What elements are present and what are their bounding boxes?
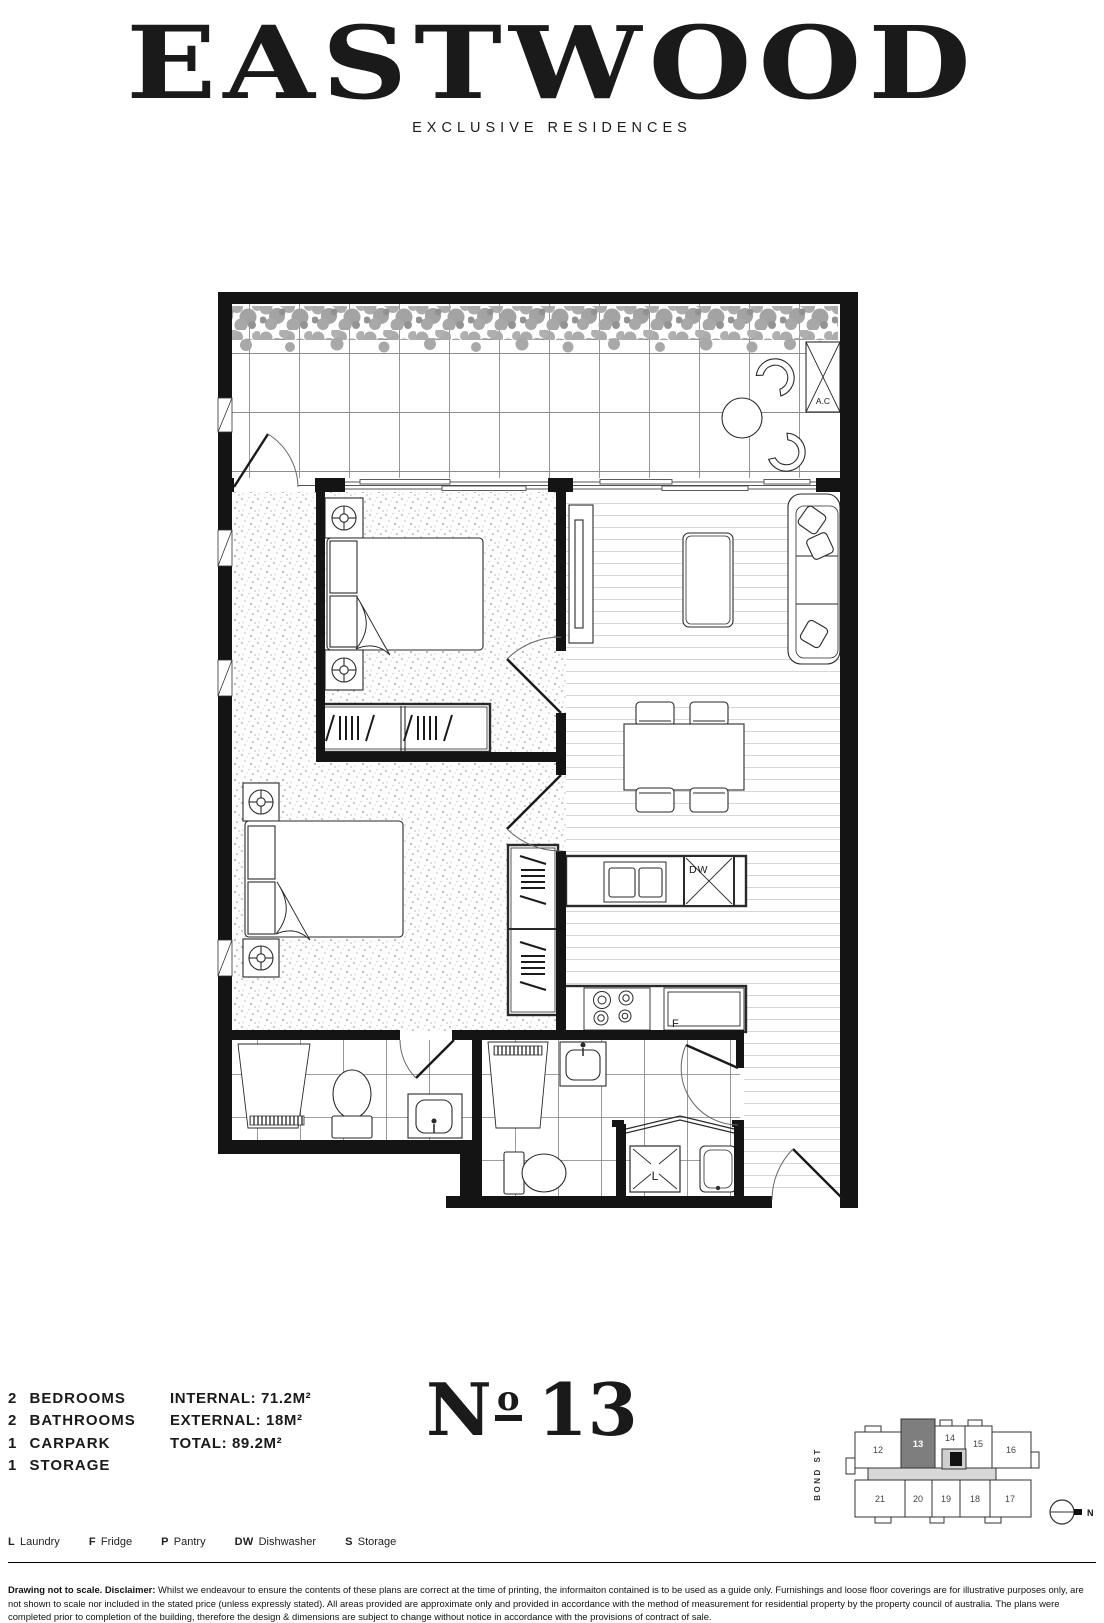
- unit-label-19: 19: [941, 1494, 951, 1504]
- area-internal: INTERNAL: 71.2M²: [170, 1388, 311, 1410]
- disclaimer-lead: Drawing not to scale. Disclaimer:: [8, 1584, 155, 1595]
- unit-label-21: 21: [875, 1494, 885, 1504]
- unit-label-15: 15: [973, 1439, 983, 1449]
- area-total: TOTAL: 89.2M²: [170, 1433, 311, 1455]
- wardrobe-master: [508, 845, 558, 1015]
- legend-key: F: [89, 1536, 96, 1548]
- fridge-label: F: [672, 1018, 679, 1030]
- unit-number-prefix: N: [426, 1367, 492, 1452]
- brand-subtitle: EXCLUSIVE RESIDENCES: [0, 120, 1104, 136]
- unit-label-16: 16: [1006, 1445, 1016, 1455]
- legend-label: Pantry: [174, 1536, 206, 1548]
- timber-entry: [744, 1032, 840, 1196]
- area-external: EXTERNAL: 18M²: [170, 1410, 311, 1432]
- toilet-2: [504, 1152, 524, 1194]
- legend: LLaundry FFridge PPantry DWDishwasher SS…: [8, 1536, 422, 1548]
- toilet: [333, 1070, 371, 1118]
- unit-label-18: 18: [970, 1494, 980, 1504]
- dining-table: [624, 724, 744, 790]
- legend-label: Laundry: [20, 1536, 60, 1548]
- disclaimer-body: Whilst we endeavour to ensure the conten…: [8, 1584, 1084, 1621]
- legend-dishwasher: DWDishwasher: [235, 1536, 316, 1548]
- shower: [238, 1044, 310, 1128]
- unit-label-13: 13: [913, 1439, 924, 1450]
- unit-number-ordinal: o: [495, 1384, 522, 1421]
- north-label: N: [1087, 1508, 1094, 1518]
- legend-label: Dishwasher: [259, 1536, 316, 1548]
- footer-divider: [8, 1562, 1096, 1563]
- summary-bedrooms: 2 BEDROOMS: [8, 1388, 136, 1410]
- summary-carpark: 1 CARPARK: [8, 1433, 136, 1455]
- legend-key: L: [8, 1536, 15, 1548]
- summary-storage: 1 STORAGE: [8, 1455, 136, 1477]
- legend-key: P: [161, 1536, 169, 1548]
- legend-label: Fridge: [101, 1536, 132, 1548]
- brand-logo: EASTWOOD: [0, 4, 1104, 122]
- sofa: [788, 494, 840, 664]
- laundry-label: L: [652, 1169, 659, 1183]
- unit-areas: INTERNAL: 71.2M² EXTERNAL: 18M² TOTAL: 8…: [170, 1388, 311, 1455]
- street-label: BOND ST: [813, 1447, 822, 1501]
- ac-label: A.C: [816, 396, 830, 406]
- legend-label: Storage: [358, 1536, 397, 1548]
- unit-label-14: 14: [945, 1433, 955, 1443]
- legend-key: DW: [235, 1536, 254, 1548]
- floor-plan: A.C DW F L: [212, 286, 860, 1216]
- legend-fridge: FFridge: [89, 1536, 132, 1548]
- unit-summary: 2 BEDROOMS 2 BATHROOMS 1 CARPARK 1 STORA…: [8, 1388, 136, 1478]
- legend-laundry: LLaundry: [8, 1536, 60, 1548]
- corridor: [868, 1468, 996, 1480]
- north-compass-icon: N: [1050, 1500, 1094, 1524]
- unit-label-20: 20: [913, 1494, 923, 1504]
- legend-storage: SStorage: [345, 1536, 396, 1548]
- legend-pantry: PPantry: [161, 1536, 205, 1548]
- disclaimer: Drawing not to scale. Disclaimer: Whilst…: [8, 1583, 1098, 1623]
- unit-label-17: 17: [1005, 1494, 1015, 1504]
- legend-key: S: [345, 1536, 353, 1548]
- keyplan: BOND ST 12 13 14 15 16 21 20 19 18 17: [782, 1398, 1100, 1532]
- unit-number: No13: [426, 1374, 638, 1446]
- dishwasher-label: DW: [689, 864, 709, 876]
- summary-bathrooms: 2 BATHROOMS: [8, 1410, 136, 1432]
- unit-label-12: 12: [873, 1445, 883, 1455]
- planter-hedge: [232, 306, 838, 340]
- unit-number-value: 13: [538, 1367, 638, 1452]
